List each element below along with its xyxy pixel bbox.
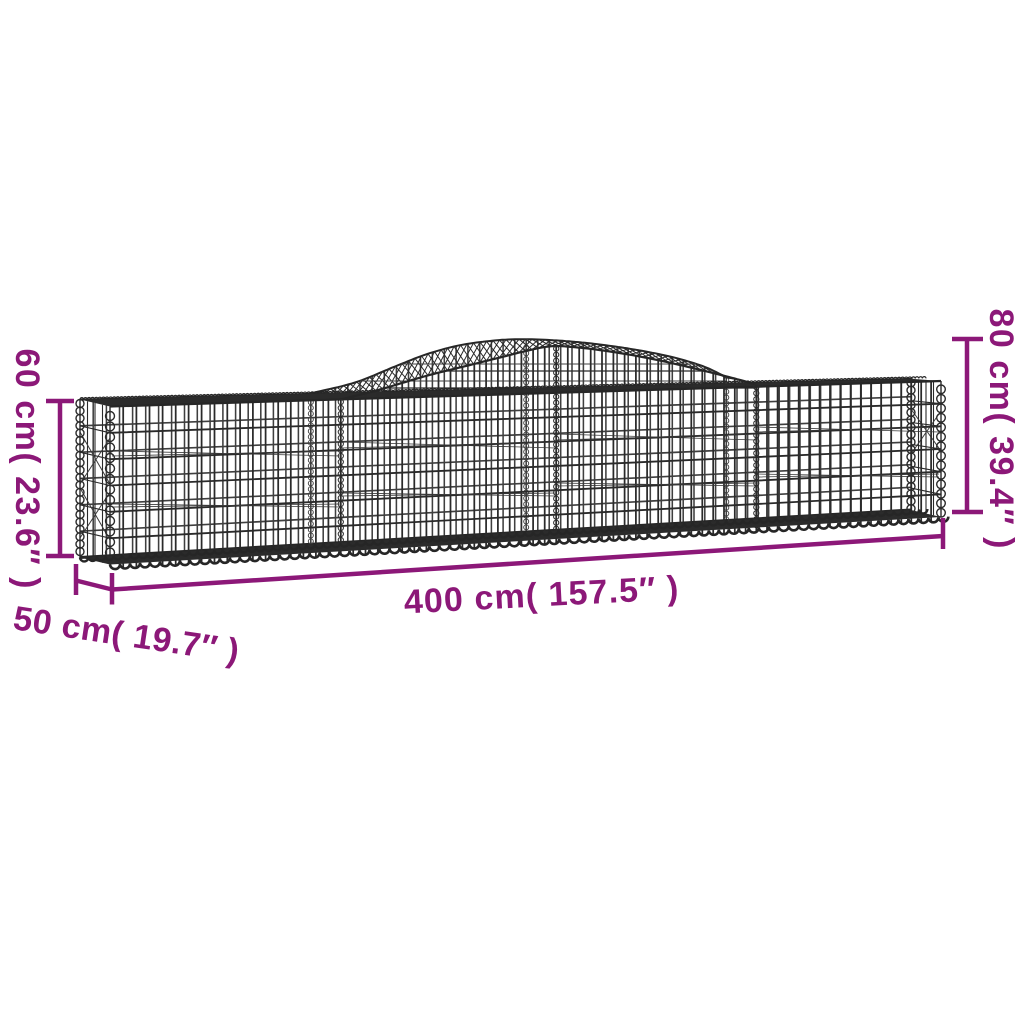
svg-text:80 cm( 39.4″ ): 80 cm( 39.4″ ) [982,309,1020,550]
svg-text:60 cm( 23.6″ ): 60 cm( 23.6″ ) [8,349,46,590]
